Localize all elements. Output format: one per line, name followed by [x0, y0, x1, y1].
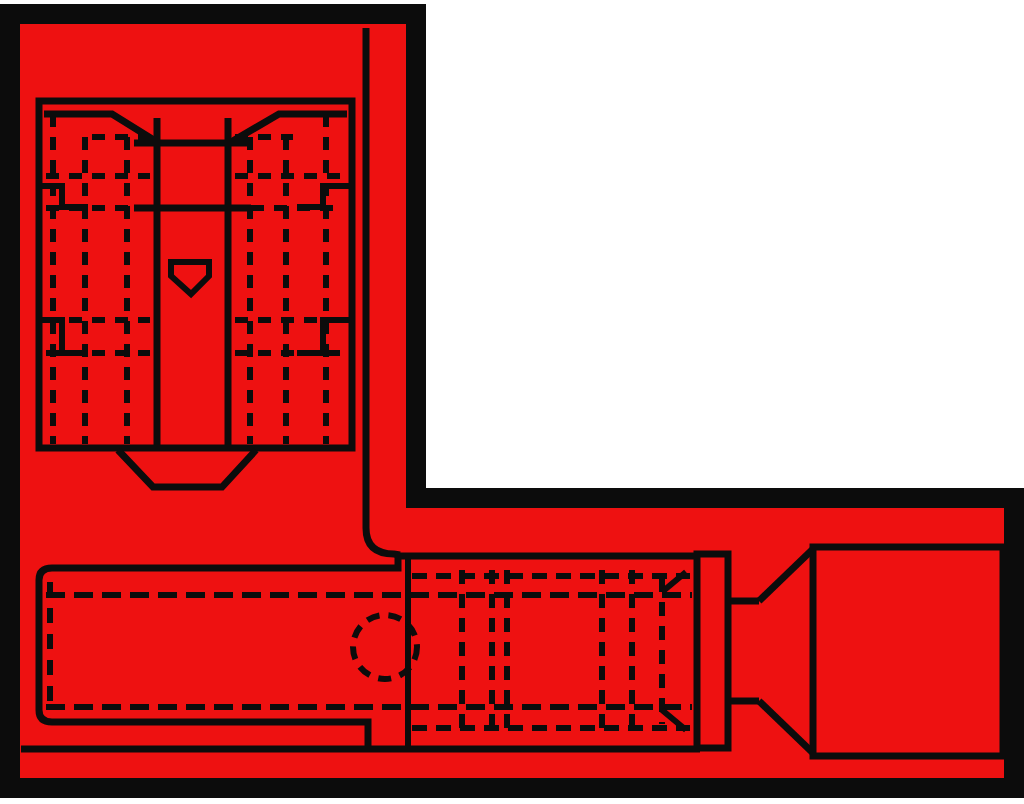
flag-terminal-diagram [0, 0, 1024, 804]
outer-shell [10, 14, 1014, 788]
l-shaped-body-outline [10, 14, 1014, 788]
terminal-diagram-page [0, 0, 1024, 804]
